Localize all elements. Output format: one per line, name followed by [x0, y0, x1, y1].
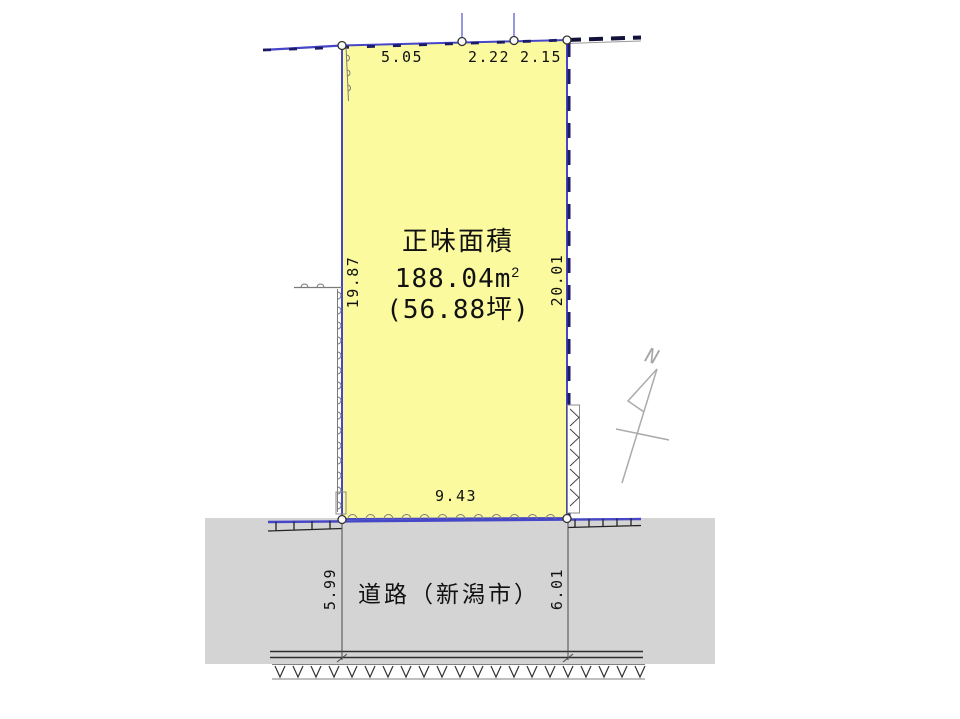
dim-bottom: 9.43	[435, 487, 477, 505]
dim-top-2: 2.22	[468, 48, 510, 66]
dim-left: 19.87	[344, 256, 362, 309]
top-boundary-ext-right	[567, 38, 641, 41]
parcel-area-text: 正味面積 188.04m2 (56.88坪)	[386, 226, 530, 326]
area-sup: 2	[511, 264, 521, 280]
boundary-point	[338, 42, 346, 50]
boundary-point	[458, 38, 466, 46]
dim-right: 20.01	[548, 254, 566, 307]
top-boundary-ext-left	[263, 46, 342, 51]
north-arrow	[616, 369, 669, 483]
north-arrow-head	[628, 369, 657, 412]
road-dim-left: 5.99	[321, 568, 339, 610]
road-dim-right: 6.01	[548, 568, 566, 610]
north-arrow-spine	[622, 369, 657, 483]
north-arrow-crossbar	[616, 429, 669, 440]
dim-top-3: 2.15	[520, 48, 562, 66]
top-survey-stubs	[462, 13, 514, 41]
boundary-point	[563, 515, 571, 523]
embankment-v-hatch	[275, 666, 645, 677]
road-label: 道路（新潟市）	[358, 575, 540, 609]
left-edge-hatch-arcs	[338, 292, 342, 509]
area-title: 正味面積	[386, 226, 530, 257]
plan-linework	[0, 0, 960, 719]
area-square-meters: 188.04m2	[386, 257, 530, 295]
boundary-point	[338, 516, 346, 524]
boundary-point	[563, 36, 571, 44]
embankment-rail-lines	[272, 665, 645, 680]
area-tsubo: (56.88坪)	[386, 295, 530, 326]
dim-top-1: 5.05	[381, 48, 423, 66]
site-survey-plan: 5.05 2.22 2.15 19.87 20.01 9.43 正味面積 188…	[0, 0, 960, 719]
boundary-point	[510, 37, 518, 45]
